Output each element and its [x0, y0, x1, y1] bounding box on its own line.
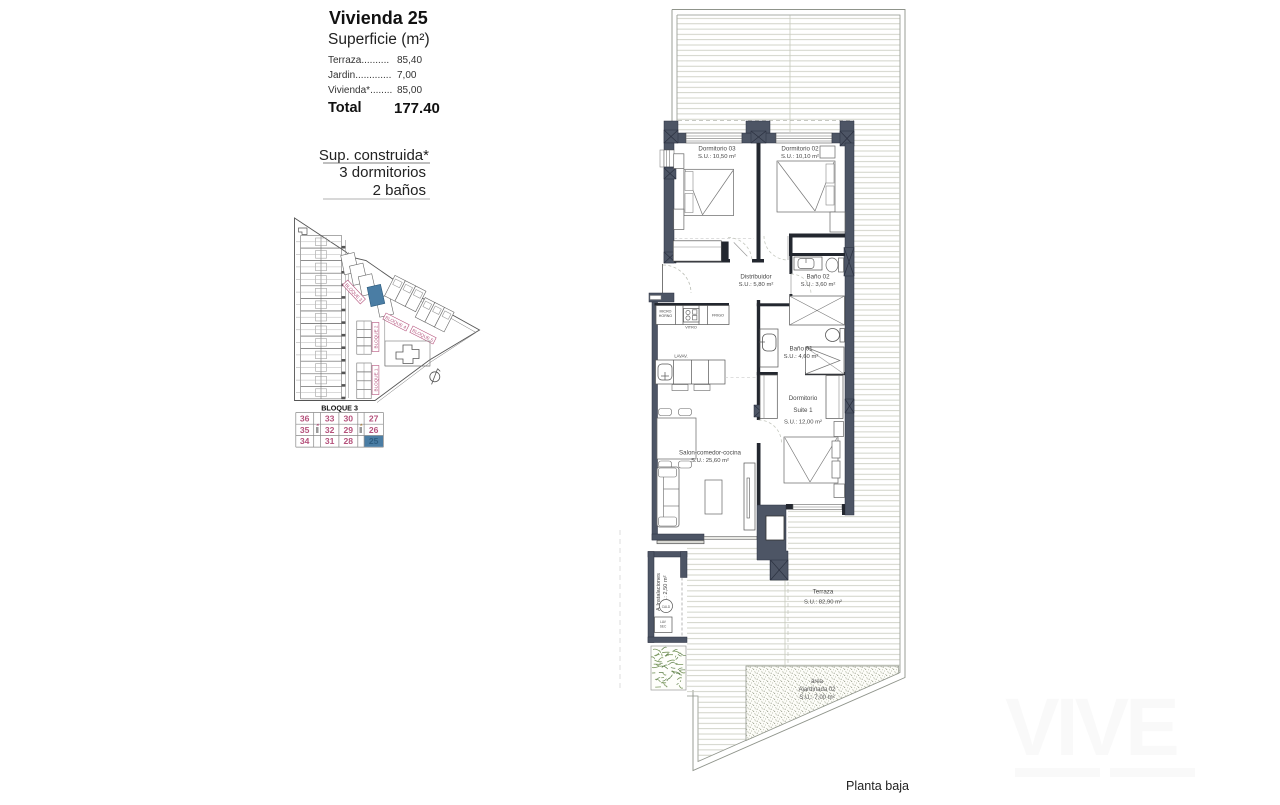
- svg-text:LAVAV.: LAVAV.: [674, 354, 687, 359]
- svg-text:Terraza: Terraza: [813, 589, 834, 596]
- svg-text:Dormitorio 02: Dormitorio 02: [781, 146, 819, 153]
- svg-text:S.U.: 25,60 m²: S.U.: 25,60 m²: [691, 458, 729, 464]
- svg-text:BLOQUE 2: BLOQUE 2: [374, 325, 379, 348]
- svg-text:CALD: CALD: [662, 605, 671, 609]
- svg-text:S.U.: 3,60 m²: S.U.: 3,60 m²: [801, 282, 836, 288]
- svg-text:Dormitorio 03: Dormitorio 03: [698, 146, 736, 153]
- svg-text:33: 33: [325, 414, 335, 424]
- svg-text:VIVE: VIVE: [1005, 682, 1177, 773]
- svg-text:SEC: SEC: [660, 625, 667, 629]
- svg-text:35: 35: [300, 425, 310, 435]
- svg-text:VITRO: VITRO: [685, 326, 697, 330]
- svg-text:Baño 02: Baño 02: [806, 274, 830, 281]
- svg-text:34: 34: [300, 436, 310, 446]
- svg-text:3 dormitorios: 3 dormitorios: [339, 164, 426, 181]
- svg-text:Jardin.............: Jardin.............: [328, 70, 391, 81]
- svg-text:S.U.: 12,00 m²: S.U.: 12,00 m²: [784, 420, 822, 426]
- svg-text:BLOQUE 1: BLOQUE 1: [374, 368, 379, 391]
- svg-text:32: 32: [325, 425, 335, 435]
- svg-text:Ajardinada 02: Ajardinada 02: [798, 687, 836, 693]
- svg-text:85,00: 85,00: [397, 85, 422, 96]
- svg-text:Planta baja: Planta baja: [846, 779, 909, 793]
- svg-text:25: 25: [369, 436, 379, 446]
- svg-text:36: 36: [300, 414, 310, 424]
- svg-text:área: área: [811, 679, 824, 685]
- svg-text:28: 28: [344, 436, 354, 446]
- svg-text:177.40: 177.40: [394, 100, 440, 117]
- svg-text:S.U.: 5,80 m²: S.U.: 5,80 m²: [739, 282, 774, 288]
- svg-text:HORNO: HORNO: [659, 314, 673, 318]
- svg-text:S.U.: 4,60 m²: S.U.: 4,60 m²: [784, 354, 819, 360]
- svg-text:2 baños: 2 baños: [373, 182, 426, 199]
- svg-text:S.U.: 82,90 m²: S.U.: 82,90 m²: [804, 600, 842, 606]
- svg-text:Distribuidor: Distribuidor: [740, 274, 771, 281]
- svg-text:29: 29: [344, 425, 354, 435]
- svg-text:31: 31: [325, 436, 335, 446]
- svg-text:Suite 1: Suite 1: [793, 407, 813, 414]
- svg-text:Salon-comedor-cocina: Salon-comedor-cocina: [679, 450, 741, 457]
- svg-text:Sup. construida*: Sup. construida*: [319, 147, 429, 164]
- svg-text:Total: Total: [328, 100, 362, 116]
- svg-text:Terraza..........: Terraza..........: [328, 55, 389, 66]
- svg-text:BLOQUE 3: BLOQUE 3: [321, 404, 358, 413]
- svg-text:LAV: LAV: [660, 620, 667, 624]
- svg-text:85,40: 85,40: [397, 55, 422, 66]
- svg-text:S.U.: 10,10 m²: S.U.: 10,10 m²: [781, 154, 819, 160]
- svg-text:27: 27: [369, 414, 379, 424]
- svg-text:30: 30: [344, 414, 354, 424]
- svg-text:Baño 01: Baño 01: [789, 346, 813, 353]
- svg-text:S.U.: 10,50 m²: S.U.: 10,50 m²: [698, 154, 736, 160]
- svg-text:Dormitorio: Dormitorio: [789, 395, 818, 402]
- svg-text:Vivienda 25: Vivienda 25: [329, 8, 428, 28]
- svg-text:26: 26: [369, 425, 379, 435]
- svg-text:S.U.: 7,00 m²: S.U.: 7,00 m²: [799, 695, 834, 701]
- svg-text:Superficie (m²): Superficie (m²): [328, 31, 430, 48]
- svg-text:7,00: 7,00: [397, 70, 417, 81]
- svg-text:MICRO: MICRO: [660, 310, 672, 314]
- svg-text:Vivienda*........: Vivienda*........: [328, 85, 392, 96]
- svg-text:FRIGO: FRIGO: [712, 314, 724, 318]
